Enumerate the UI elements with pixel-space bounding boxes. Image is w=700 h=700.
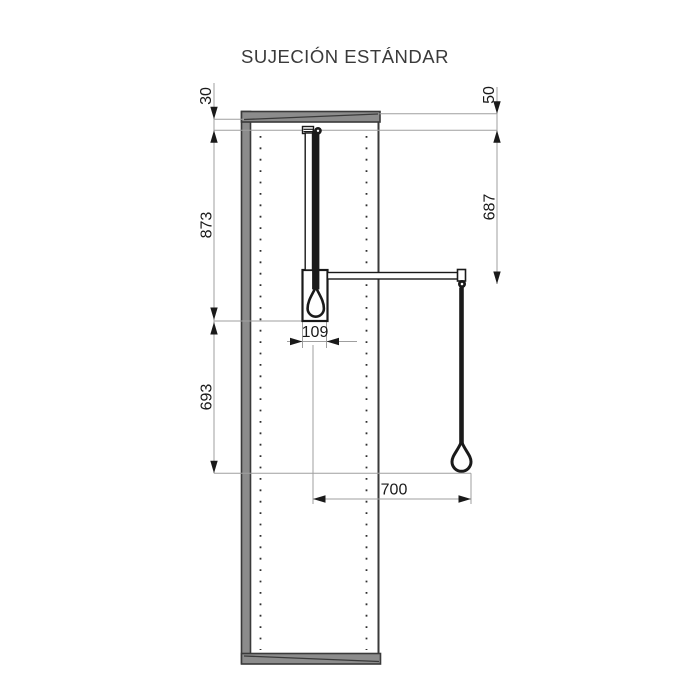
- rail-pivot-center: [461, 283, 464, 286]
- diagram-stage: SUJECIÓN ESTÁNDAR: [0, 0, 700, 700]
- drawing-title: SUJECIÓN ESTÁNDAR: [241, 46, 449, 67]
- dim-label-109: 109: [302, 324, 329, 341]
- hanging-rail: [328, 273, 459, 280]
- dim-label-50: 50: [481, 86, 498, 104]
- dim-label-693: 693: [199, 384, 216, 411]
- dim-label-700: 700: [381, 482, 408, 499]
- top-pivot-center: [317, 130, 319, 132]
- dim-label-687: 687: [482, 194, 499, 221]
- inner-rod: [313, 131, 320, 289]
- technical-drawing: SUJECIÓN ESTÁNDAR: [0, 0, 700, 700]
- rail-end-cap: [458, 270, 466, 282]
- dim-label-30: 30: [198, 87, 215, 105]
- outer-tube: [305, 133, 312, 270]
- panel-left-edge: [242, 112, 251, 664]
- canvas-background: [0, 0, 700, 700]
- dim-label-873: 873: [199, 212, 216, 239]
